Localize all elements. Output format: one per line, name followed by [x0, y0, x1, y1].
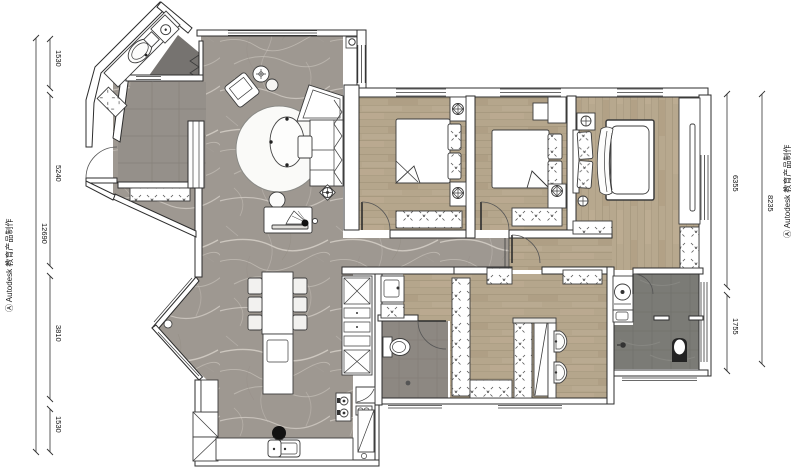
svg-text:8235: 8235 [766, 195, 775, 212]
svg-text:1530: 1530 [54, 50, 63, 67]
svg-text:Ⓐ Autodesk 教育产品制作: Ⓐ Autodesk 教育产品制作 [4, 219, 14, 312]
svg-text:12690: 12690 [40, 223, 49, 244]
svg-text:5240: 5240 [54, 165, 63, 182]
svg-text:Ⓐ Autodesk 教育产品制作: Ⓐ Autodesk 教育产品制作 [782, 145, 792, 238]
svg-text:3810: 3810 [54, 325, 63, 342]
svg-text:6355: 6355 [731, 175, 740, 192]
svg-text:1755: 1755 [731, 318, 740, 335]
svg-text:1530: 1530 [54, 416, 63, 433]
